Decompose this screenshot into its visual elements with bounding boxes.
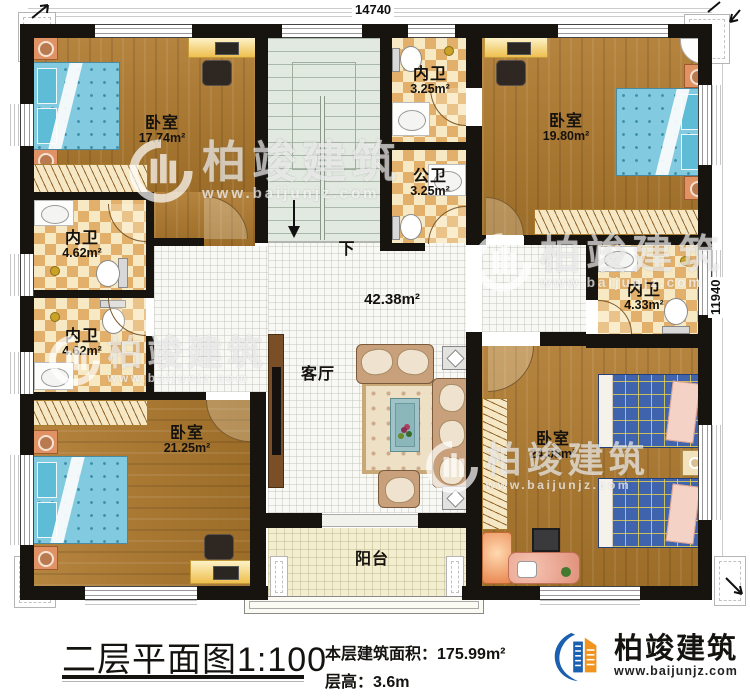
window-sill [10, 455, 20, 545]
wall [586, 334, 712, 348]
window-sill [85, 600, 197, 608]
desk [190, 560, 254, 584]
window [698, 85, 712, 165]
tv-cabinet [268, 334, 284, 488]
wall-balcony [418, 513, 466, 528]
wall [466, 24, 482, 88]
toilet [96, 260, 120, 287]
wall [146, 242, 154, 298]
plant-icon [561, 567, 571, 577]
room-label-bathroom-left-lower: 内卫4.62m² [62, 328, 102, 358]
room-label-bedroom-bottom-left: 卧室21.25m² [164, 425, 211, 455]
balcony-bracket [270, 556, 288, 598]
wall [482, 235, 486, 245]
window-sill [540, 600, 640, 608]
window [85, 586, 197, 600]
stair-living-threshold [268, 241, 380, 243]
wall [380, 243, 425, 251]
dimension-right: 11940 [708, 277, 723, 318]
wardrobe [534, 209, 704, 235]
brand-url: www.baijunjz.com [614, 664, 738, 678]
wall [20, 192, 154, 200]
desk-chair [204, 534, 234, 560]
window [20, 254, 34, 296]
double-bed [32, 62, 120, 150]
sink-counter [392, 102, 430, 136]
wardrobe [32, 400, 148, 426]
sink-counter [34, 362, 74, 390]
wall-balcony [250, 513, 322, 528]
window-sill [10, 254, 20, 296]
window [540, 586, 640, 600]
section-arrow-icon [28, 0, 58, 20]
dimension-top: 14740 [352, 2, 394, 17]
wall-stair-east [380, 24, 392, 251]
window-sill [712, 425, 722, 520]
double-bed [32, 456, 128, 544]
nightstand [32, 546, 58, 570]
window [408, 24, 455, 38]
nightstand [32, 430, 58, 454]
brand-logo-icon [550, 628, 608, 684]
plan-title: 二层平面图1:100 [62, 632, 327, 681]
window [20, 104, 34, 146]
sofa-three-seat [432, 378, 470, 488]
wall [146, 336, 154, 392]
stair-arrow-head-icon [288, 226, 300, 238]
single-bed [598, 478, 706, 548]
nightstand [32, 36, 58, 60]
window-sill [10, 104, 20, 146]
stair-arrow-line [293, 200, 295, 226]
window-sill [712, 85, 722, 165]
desk [188, 37, 256, 58]
wall [392, 142, 466, 150]
wall [20, 392, 206, 400]
double-bed [616, 88, 706, 176]
brand-logo: 柏竣建筑 www.baijunjz.com [550, 628, 738, 684]
room-label-living-name: 客厅 [301, 366, 335, 383]
wardrobe [32, 164, 148, 193]
floor-area-text: 本层建筑面积：175.99m² [325, 640, 506, 664]
towel-ring-icon [680, 256, 690, 266]
coffee-table [390, 398, 420, 452]
wall [540, 332, 586, 346]
wall [586, 245, 598, 300]
desk [484, 37, 548, 58]
toilet-tank [392, 216, 400, 240]
floor-height-text: 层高：3.6m [325, 668, 409, 692]
section-arrow-icon [722, 574, 750, 600]
title-underline-light [62, 681, 304, 682]
wall [154, 238, 204, 246]
brand-name: 柏竣建筑 [614, 634, 738, 664]
toilet [400, 214, 422, 240]
room-label-bedroom-top-left: 卧室17.74m² [139, 115, 186, 145]
towel-ring-icon [50, 312, 60, 322]
armchair [378, 470, 420, 508]
room-label-bathroom-top: 内卫3.25m² [410, 66, 450, 96]
window [558, 24, 668, 38]
wall [20, 290, 146, 298]
balcony-railing [244, 596, 484, 614]
room-label-bathroom-left-upper: 内卫4.62m² [62, 230, 102, 260]
sink-counter [34, 200, 74, 226]
side-table-lamp [442, 486, 468, 510]
stair-rail [320, 96, 325, 240]
floor-plan-page: 14740 11940 [0, 0, 750, 697]
computer-monitor [532, 528, 560, 552]
window [282, 24, 362, 38]
window-sill [10, 352, 20, 394]
towel-ring-icon [50, 266, 60, 276]
wall [146, 192, 154, 246]
single-bed [598, 374, 706, 448]
balcony-threshold [322, 514, 418, 527]
sink-counter [598, 246, 638, 272]
toilet [664, 298, 688, 325]
room-label-bedroom-bottom-right: 卧室24.08m² [530, 431, 577, 461]
wall-stair-west [255, 24, 268, 243]
room-label-balcony: 阳台 [355, 551, 389, 568]
stairs-down-label: 下 [338, 241, 355, 258]
window [20, 455, 34, 545]
floor-hall-west [154, 246, 268, 392]
toilet-tank [392, 48, 400, 72]
floor-hall-east [482, 245, 586, 332]
room-label-bathroom-public: 公卫3.25m² [410, 168, 450, 198]
table-flowers-icon [401, 427, 407, 433]
desk [508, 552, 580, 584]
window [20, 352, 34, 394]
wall [250, 392, 266, 600]
wall [524, 235, 712, 245]
section-arrow-icon [700, 0, 746, 30]
sofa-two-seat [356, 344, 434, 384]
room-label-bathroom-right: 内卫4.33m² [624, 282, 664, 312]
room-label-bedroom-top-right: 卧室19.80m² [543, 113, 590, 143]
chair-icon [517, 561, 537, 578]
title-underline [62, 675, 304, 679]
toilet-tank [662, 326, 690, 334]
wall [466, 126, 482, 245]
desk-chair [496, 60, 526, 86]
side-table-lamp [442, 346, 468, 370]
window [95, 24, 192, 38]
desk-chair [202, 60, 232, 86]
wardrobe [482, 398, 508, 530]
towel-ring-icon [444, 46, 454, 56]
window [698, 425, 712, 520]
room-label-living-area: 42.38m² [364, 293, 420, 306]
wall [466, 332, 482, 600]
